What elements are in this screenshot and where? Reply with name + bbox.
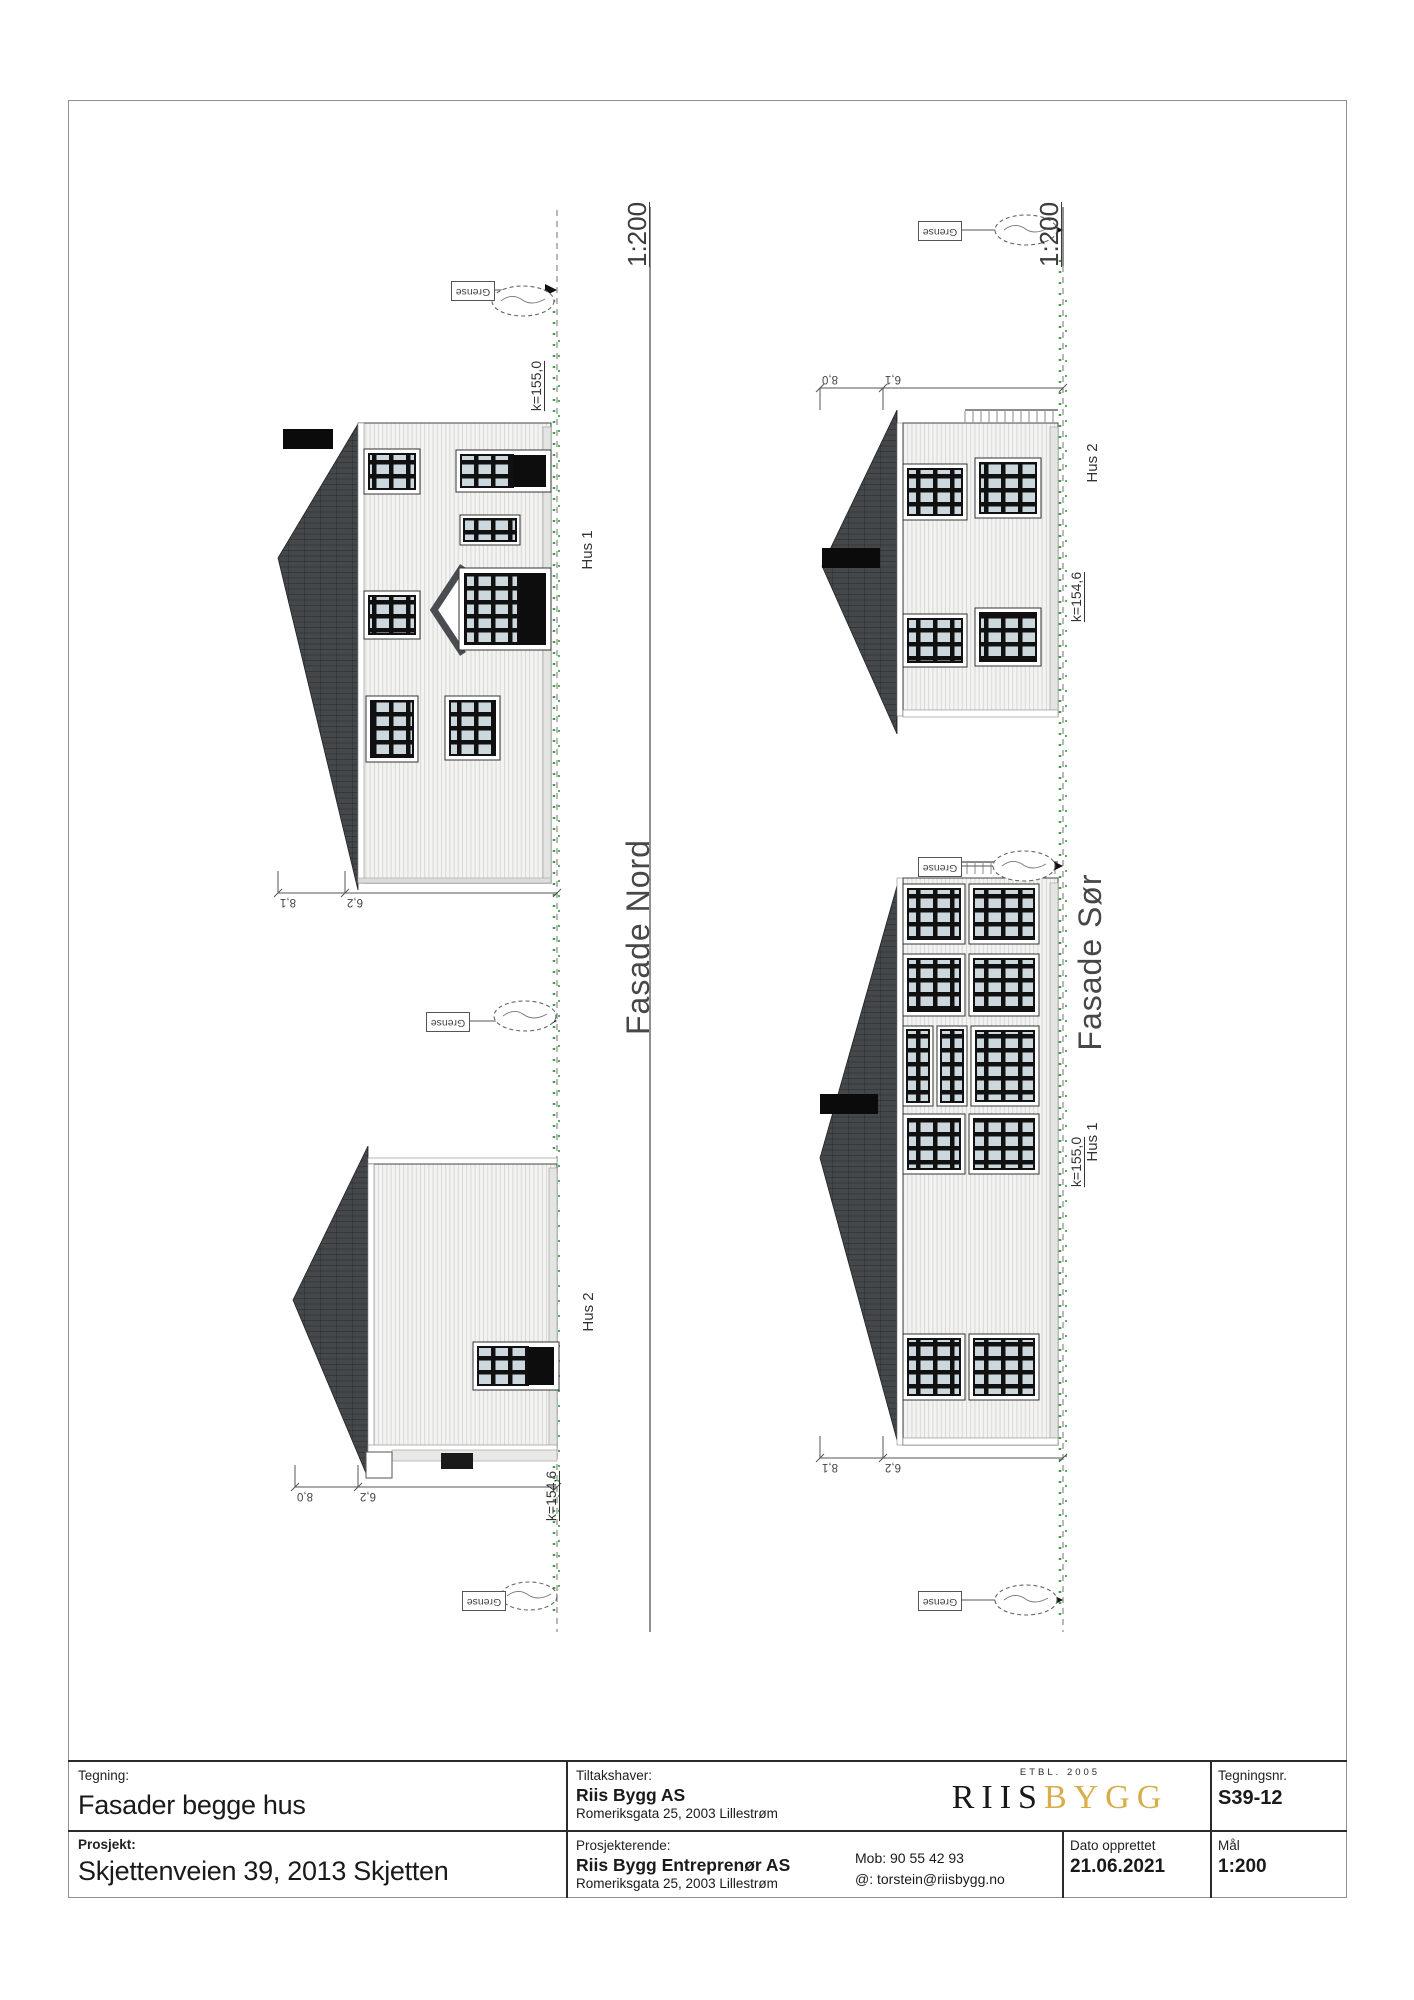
prosjekterende-address: Romeriksgata 25, 2003 Lillestrøm — [576, 1876, 778, 1892]
logo-bygg-text: BYGG — [1044, 1779, 1168, 1816]
titleblock-divider-1 — [566, 1760, 568, 1898]
scale-label-sor: 1:200 — [1034, 203, 1064, 267]
house-label-hus1-sor: Hus 1 — [1084, 1120, 1102, 1164]
dato-value: 21.06.2021 — [1070, 1856, 1165, 1878]
drawing-sheet: 1:200 1:200 Fasade Nord Fasade Sør Hus 1… — [0, 0, 1414, 2000]
tegning-value: Fasader begge hus — [78, 1790, 306, 1821]
dim-eaves-hus1-sor: 6,2 — [880, 1460, 906, 1473]
dim-ridge-hus2-sor: 8,0 — [817, 372, 843, 385]
kote-label-hus2-nord: k=154,6 — [543, 1463, 559, 1529]
mobile-number: Mob: 90 55 42 93 — [855, 1850, 964, 1866]
sheet-border — [68, 100, 1347, 1898]
dim-eaves-hus1-nord: 6,2 — [342, 895, 368, 908]
logo-etbl-text: ETBL. 2005 — [924, 1768, 1196, 1779]
prosjekterende-name: Riis Bygg Entreprenør AS — [576, 1855, 790, 1875]
grense-tag-sor-3: Grense — [918, 1591, 962, 1611]
titleblock-divider-3 — [1210, 1760, 1212, 1898]
kote-label-hus2-sor: k=154,6 — [1068, 564, 1084, 630]
prosjekt-value: Skjettenveien 39, 2013 Skjetten — [78, 1856, 448, 1887]
tegningsnr-label: Tegningsnr. — [1218, 1768, 1287, 1784]
prosjekt-label: Prosjekt: — [78, 1837, 136, 1853]
maal-value: 1:200 — [1218, 1856, 1267, 1878]
house-label-hus2-nord: Hus 2 — [580, 1290, 598, 1334]
titleblock-top-line — [68, 1760, 1347, 1762]
dato-label: Dato opprettet — [1070, 1838, 1156, 1854]
email: @: torstein@riisbygg.no — [855, 1871, 1005, 1887]
maal-label: Mål — [1218, 1838, 1240, 1854]
grense-tag-nord-2: Grense — [426, 1012, 470, 1032]
grense-tag-sor-2: Grense — [918, 857, 962, 877]
scale-label-nord: 1:200 — [622, 203, 652, 267]
dim-eaves-hus2-nord: 6,2 — [355, 1489, 381, 1502]
kote-label-hus1-nord: k=155,0 — [528, 353, 544, 419]
prosjekterende-label: Prosjekterende: — [576, 1838, 671, 1854]
tiltakshaver-label: Tiltakshaver: — [576, 1768, 652, 1784]
tegningsnr-value: S39-12 — [1218, 1787, 1283, 1810]
titleblock-divider-2 — [1062, 1830, 1064, 1898]
house-label-hus2-sor: Hus 2 — [1084, 441, 1102, 485]
dim-ridge-hus2-nord: 8,0 — [292, 1489, 318, 1502]
tiltakshaver-name: Riis Bygg AS — [576, 1785, 685, 1805]
kote-label-hus1-sor: k=155,0 — [1068, 1129, 1084, 1195]
grense-tag-nord-1: Grense — [451, 281, 495, 301]
panel-title-fasade-sor: Fasade Sør — [1071, 852, 1109, 1072]
dim-ridge-hus1-nord: 8,1 — [275, 895, 301, 908]
logo-riis-text: RIIS — [952, 1779, 1044, 1816]
tegning-label: Tegning: — [78, 1768, 129, 1784]
tiltakshaver-address: Romeriksgata 25, 2003 Lillestrøm — [576, 1806, 778, 1822]
dim-ridge-hus1-sor: 8,1 — [817, 1460, 843, 1473]
titleblock-mid-line — [68, 1830, 1347, 1832]
dim-eaves-hus2-sor: 6,1 — [880, 372, 906, 385]
logo-wordmark: RIISBYGG — [924, 1781, 1196, 1815]
grense-tag-nord-3: Grense — [462, 1591, 506, 1611]
panel-title-fasade-nord: Fasade Nord — [619, 827, 657, 1047]
grense-tag-sor-1: Grense — [918, 221, 962, 241]
house-label-hus1-nord: Hus 1 — [579, 528, 597, 572]
